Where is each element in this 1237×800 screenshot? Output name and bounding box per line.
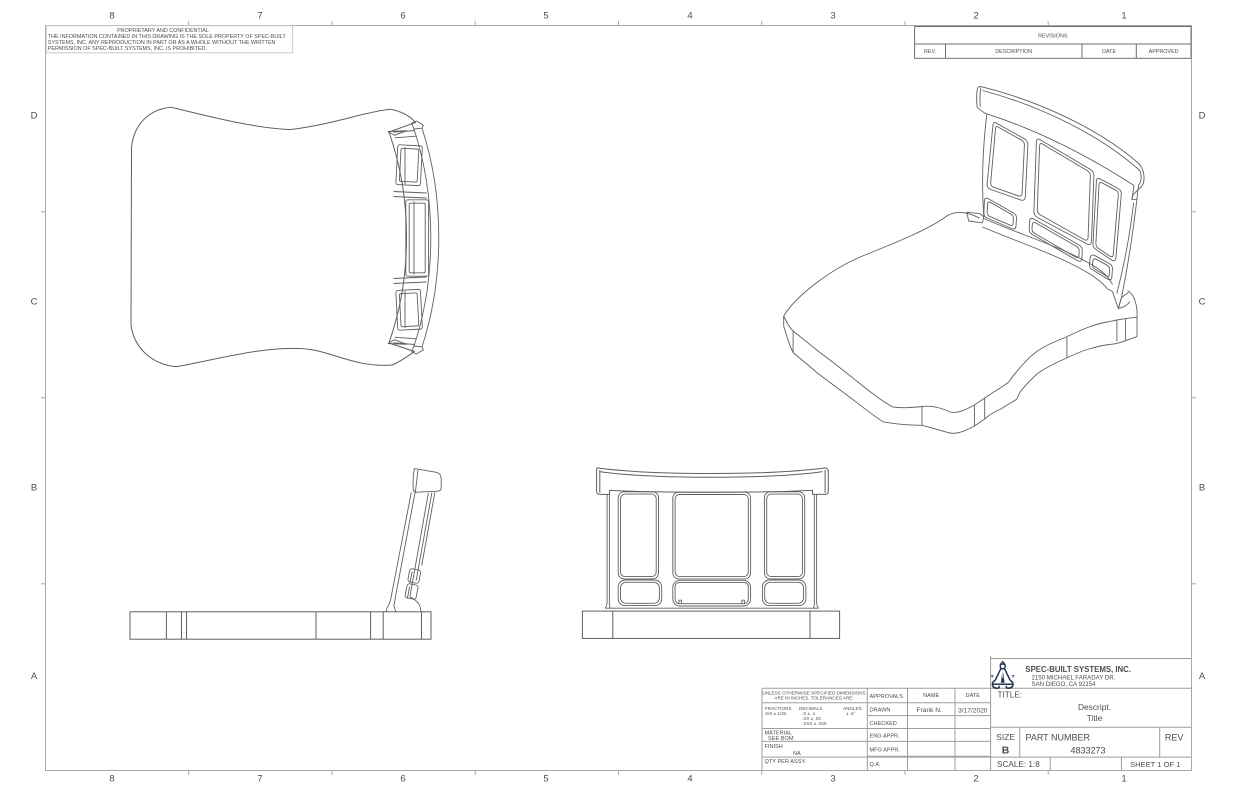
svg-text:SHEET 1 OF 1: SHEET 1 OF 1 (1130, 760, 1181, 769)
svg-text:D: D (31, 111, 38, 122)
svg-text:SEE BOM: SEE BOM (768, 736, 794, 742)
svg-text:CHECKED: CHECKED (870, 721, 897, 727)
svg-text:APPROVED: APPROVED (1149, 49, 1179, 55)
svg-text:REVISIONS: REVISIONS (1038, 33, 1068, 39)
svg-text:C: C (31, 297, 38, 308)
svg-text:SIZE: SIZE (996, 732, 1015, 742)
svg-text:4: 4 (687, 11, 692, 22)
svg-text:TITLE:: TITLE: (998, 691, 1023, 700)
svg-text:B: B (31, 483, 37, 494)
svg-text:3: 3 (830, 774, 835, 785)
svg-text:A: A (1199, 671, 1206, 682)
svg-text:SCALE: 1:8: SCALE: 1:8 (997, 760, 1040, 769)
svg-text:Q.A.: Q.A. (870, 762, 882, 768)
svg-text:DATE: DATE (1102, 49, 1116, 55)
svg-text:Title: Title (1087, 713, 1103, 723)
svg-text:6: 6 (400, 11, 405, 22)
svg-text:8: 8 (109, 774, 114, 785)
svg-text:± .5°: ± .5° (846, 711, 856, 716)
svg-text:DATE: DATE (966, 693, 981, 699)
svg-text:1: 1 (1121, 774, 1126, 785)
svg-text:A: A (31, 671, 38, 682)
svg-text:5: 5 (543, 774, 548, 785)
svg-text:ENG APPR.: ENG APPR. (870, 734, 901, 740)
svg-text:FINISH: FINISH (765, 744, 783, 750)
svg-text:NA: NA (793, 751, 801, 757)
svg-text:DRAWN: DRAWN (870, 708, 891, 714)
svg-text:B: B (1199, 483, 1205, 494)
svg-text:Descript.: Descript. (1078, 702, 1111, 712)
svg-text:7: 7 (257, 774, 262, 785)
svg-text:4: 4 (687, 774, 692, 785)
svg-text:2: 2 (973, 11, 978, 22)
svg-text:7: 7 (257, 11, 262, 22)
svg-text:MFG APPR.: MFG APPR. (870, 748, 901, 754)
svg-text:PART NUMBER: PART NUMBER (1026, 733, 1091, 743)
svg-text:REV.: REV. (924, 49, 936, 55)
svg-text:SPEC-BUILT SYSTEMS, INC.: SPEC-BUILT SYSTEMS, INC. (1025, 665, 1131, 674)
svg-text:3/17/2020: 3/17/2020 (958, 708, 988, 715)
svg-text:4833273: 4833273 (1070, 746, 1105, 756)
svg-text:QTY PER ASSY.: QTY PER ASSY. (765, 759, 807, 765)
svg-text:PERMISSION OF SPEC-BUILT SYSTE: PERMISSION OF SPEC-BUILT SYSTEMS, INC. I… (48, 46, 207, 52)
svg-text:6: 6 (400, 774, 405, 785)
svg-text:APPROVALS: APPROVALS (870, 694, 904, 700)
svg-text:D: D (1199, 111, 1206, 122)
svg-text:SAN DIEGO, CA 92154: SAN DIEGO, CA 92154 (1032, 681, 1097, 688)
svg-text:.XXX ± .020: .XXX ± .020 (802, 721, 827, 726)
svg-text:ARE IN INCHES. TOLERANCES ARE: ARE IN INCHES. TOLERANCES ARE: (774, 696, 853, 701)
svg-text:X/X ± 1/32: X/X ± 1/32 (765, 711, 787, 716)
svg-text:C: C (1199, 297, 1206, 308)
svg-text:Frank N.: Frank N. (917, 707, 942, 714)
svg-text:REV: REV (1165, 733, 1184, 743)
svg-text:1: 1 (1121, 11, 1126, 22)
svg-text:B: B (1002, 745, 1010, 757)
svg-text:8: 8 (109, 11, 114, 22)
svg-text:2: 2 (973, 774, 978, 785)
svg-text:5: 5 (543, 11, 548, 22)
svg-text:NAME: NAME (923, 693, 939, 699)
svg-text:3: 3 (830, 11, 835, 22)
svg-text:DESCRIPTION: DESCRIPTION (995, 49, 1032, 55)
